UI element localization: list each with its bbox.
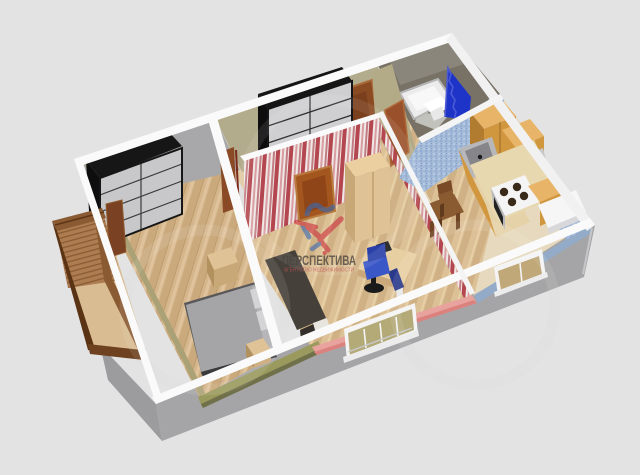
svg-text:ПЕРСПЕКТИВА: ПЕРСПЕКТИВА — [282, 253, 356, 268]
svg-text:АГЕНТСТВО НЕДВИЖИМОСТИ: АГЕНТСТВО НЕДВИЖИМОСТИ — [284, 268, 354, 274]
